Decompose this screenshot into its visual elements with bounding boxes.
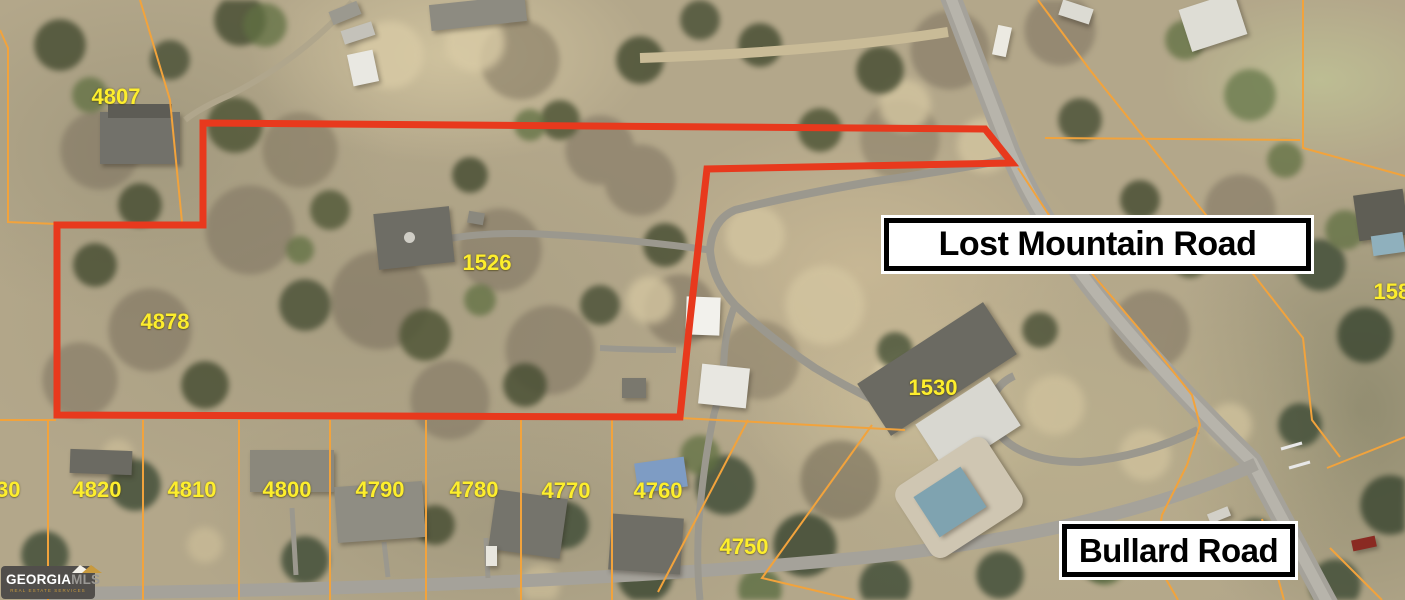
logo-georgia-text: GEORGIA	[6, 573, 71, 587]
parcel-number-label: 4820	[73, 477, 122, 503]
logo-mls-text: MLS	[71, 572, 100, 587]
logo-tagline: REAL ESTATE SERVICES	[6, 588, 90, 593]
parcel-number-label: 1580	[1374, 279, 1405, 305]
parcel-number-label: 4750	[720, 534, 769, 560]
parcel-number-label: 4760	[634, 478, 683, 504]
aerial-parcel-map: 4807152648784830482048104800479047804770…	[0, 0, 1405, 600]
parcel-number-label: 4770	[542, 478, 591, 504]
parcel-number-label: 1526	[463, 250, 512, 276]
parcel-number-label: 4780	[450, 477, 499, 503]
parcel-number-label: 1530	[909, 375, 958, 401]
bullard-road-sign: Bullard Road	[1062, 524, 1295, 577]
parcel-number-label: 4790	[356, 477, 405, 503]
georgia-mls-logo: GEORGIAMLS REAL ESTATE SERVICES	[1, 566, 95, 599]
parcel-number-labels: 4807152648784830482048104800479047804770…	[0, 0, 1405, 600]
bullard-road-sign-text: Bullard Road	[1079, 532, 1278, 570]
parcel-number-label: 4878	[141, 309, 190, 335]
lost-mountain-road-sign: Lost Mountain Road	[884, 218, 1311, 271]
mountain-icon	[72, 565, 102, 573]
parcel-number-label: 4810	[168, 477, 217, 503]
parcel-number-label: 4800	[263, 477, 312, 503]
lost-mountain-road-sign-text: Lost Mountain Road	[939, 225, 1257, 264]
parcel-number-label: 4807	[92, 84, 141, 110]
parcel-number-label: 4830	[0, 477, 20, 503]
